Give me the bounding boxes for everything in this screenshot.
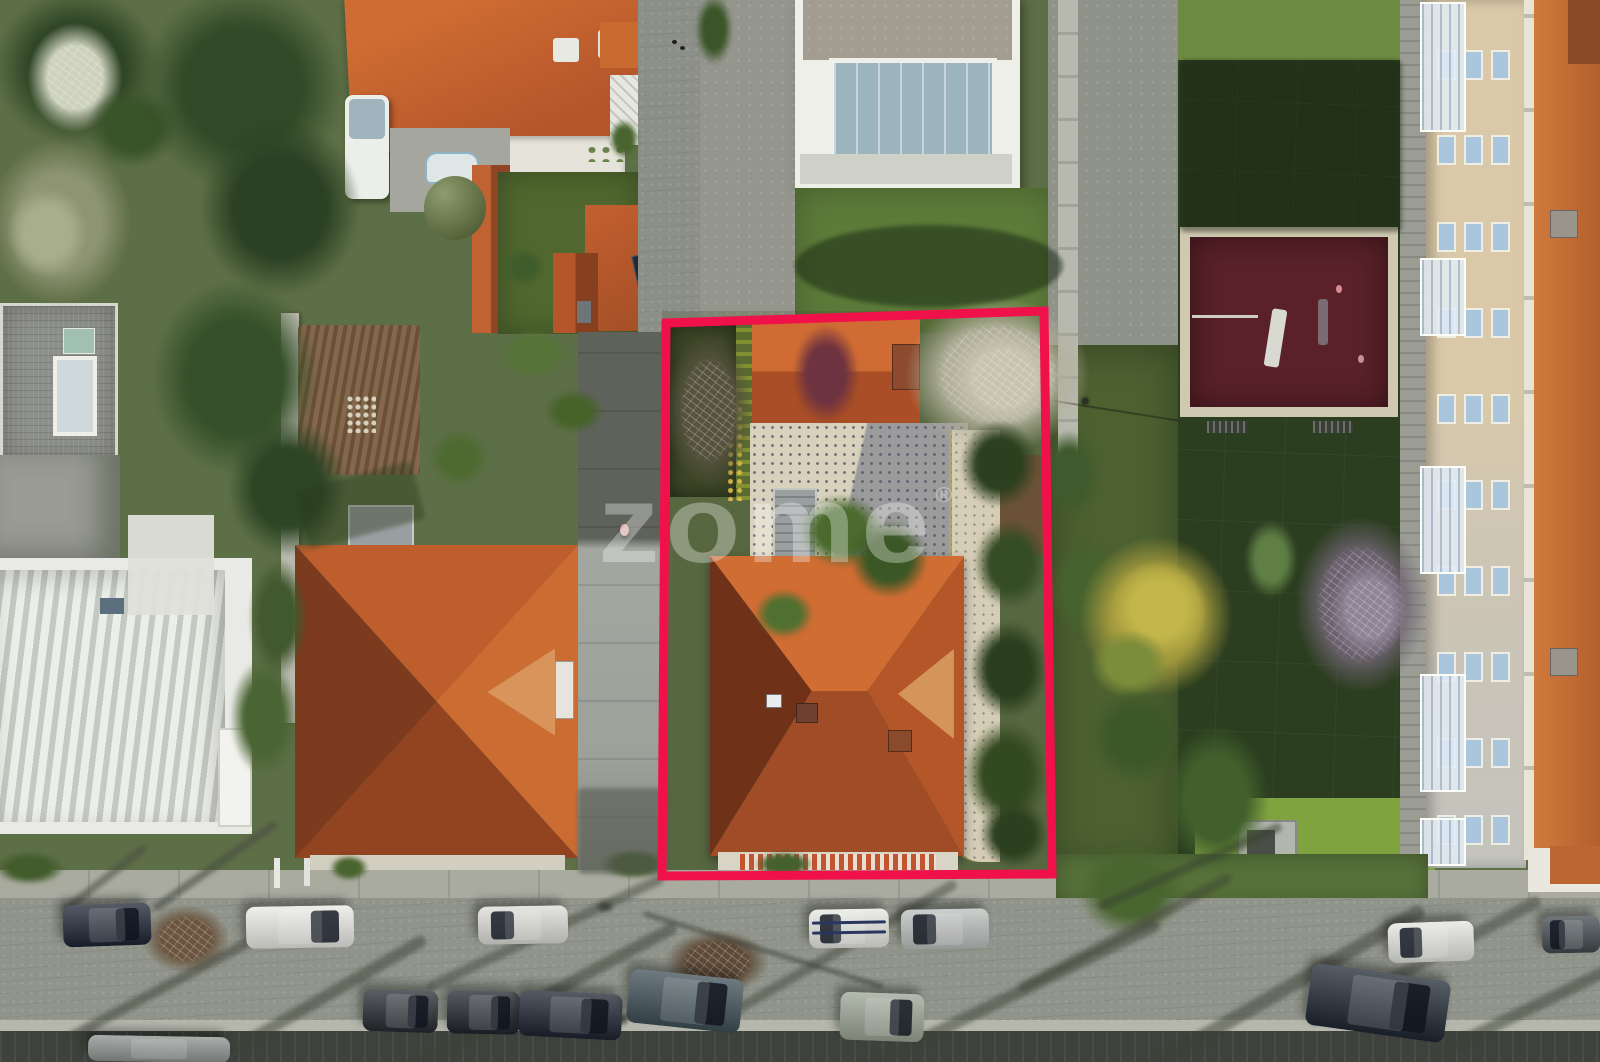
car-roof	[278, 910, 322, 944]
aerial-photo: zome®	[0, 0, 1600, 1062]
car-roof	[385, 994, 416, 1029]
parked-car	[62, 902, 151, 947]
car-roof	[927, 913, 963, 946]
parked-car	[1304, 963, 1451, 1044]
parked-car	[839, 992, 925, 1043]
parked-car	[1542, 915, 1600, 953]
watermark: zome®	[598, 470, 953, 580]
car-roof	[1347, 975, 1409, 1032]
car-roof	[833, 913, 866, 945]
parked-car	[88, 1035, 230, 1062]
car-roof	[660, 977, 710, 1025]
car-roof	[89, 908, 125, 943]
parked-car	[901, 908, 990, 950]
car-roof	[505, 909, 542, 940]
parked-car	[1387, 921, 1474, 964]
racing-stripe	[812, 930, 886, 934]
car-roof	[130, 1038, 187, 1060]
parked-car	[625, 968, 744, 1034]
parked-car	[809, 908, 890, 948]
parked-car	[478, 905, 569, 945]
car-roof	[1413, 925, 1448, 958]
car-roof	[865, 997, 900, 1037]
parked-car	[362, 989, 438, 1034]
parked-car	[447, 990, 521, 1034]
registered-mark: ®	[935, 484, 952, 507]
car-roof	[549, 996, 592, 1035]
parked-car	[246, 905, 355, 949]
watermark-text: zome	[598, 463, 935, 586]
car-roof	[1559, 919, 1583, 949]
parked-car	[518, 989, 623, 1040]
car-roof	[469, 995, 499, 1030]
